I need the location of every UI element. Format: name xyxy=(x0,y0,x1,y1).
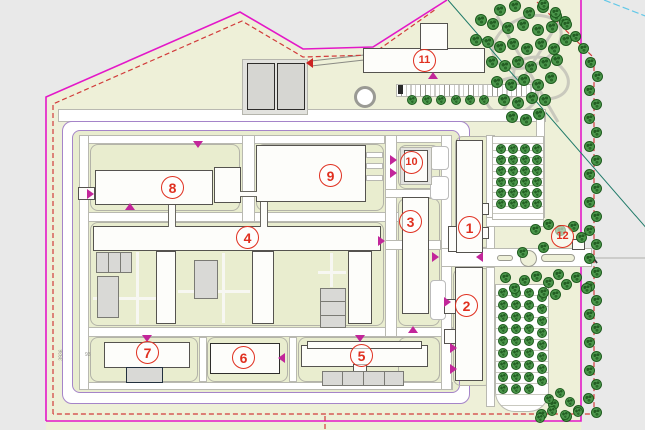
building-1-bump xyxy=(482,203,489,215)
pad xyxy=(430,146,449,170)
building-9-annex xyxy=(214,167,241,203)
building-2-annex xyxy=(444,329,456,344)
building-10 xyxy=(404,150,428,182)
yard-path xyxy=(136,252,139,324)
gatehouse-12 xyxy=(572,239,585,250)
twin-building-east xyxy=(277,63,305,110)
building-3 xyxy=(402,197,429,314)
twin-building-west xyxy=(247,63,275,110)
road-v4 xyxy=(199,337,207,382)
yard-path xyxy=(222,253,225,323)
entrance-median-2 xyxy=(541,254,575,262)
building-2 xyxy=(455,267,483,381)
service-box xyxy=(97,276,119,318)
parking-strip-11 xyxy=(396,84,536,97)
building-4-bar xyxy=(93,226,381,251)
yard-path xyxy=(330,253,333,287)
service-box xyxy=(96,252,132,273)
building-9-finger xyxy=(366,163,383,169)
building-9-finger xyxy=(366,175,383,181)
pad xyxy=(430,176,449,200)
building-6 xyxy=(210,343,280,374)
road-v6b xyxy=(486,267,495,407)
building-1-bump xyxy=(482,227,489,239)
building-4-wing-3 xyxy=(348,251,372,324)
road-v1 xyxy=(242,135,255,222)
building-11 xyxy=(363,48,485,73)
site-plan-drawing: 123456789101112 393693 xyxy=(0,0,645,430)
building-8 xyxy=(95,170,213,205)
service-box xyxy=(194,260,218,299)
corridor-8-4 xyxy=(168,205,176,227)
road-h1 xyxy=(79,212,399,222)
entrance-median-1 xyxy=(497,255,513,261)
corridor-annex-9 xyxy=(240,191,257,197)
yard-path xyxy=(318,271,346,274)
survey-cyan-line xyxy=(604,0,645,17)
building-1-annex xyxy=(448,226,457,252)
building-7-annex xyxy=(126,367,163,383)
road-west xyxy=(79,135,89,390)
road-v2 xyxy=(385,135,397,337)
service-box xyxy=(320,288,346,328)
building-11-tower xyxy=(420,23,448,50)
building-5-garages xyxy=(322,371,404,386)
building-7 xyxy=(104,342,190,368)
building-8-stub xyxy=(78,187,95,200)
building-1 xyxy=(456,140,483,253)
road-v5 xyxy=(289,337,297,382)
building-4-wing-2 xyxy=(252,251,274,324)
corridor-9-4 xyxy=(260,202,268,227)
roundabout-island xyxy=(520,250,537,267)
road-top xyxy=(79,135,385,144)
building-9-finger xyxy=(366,152,383,158)
parking-bottom xyxy=(495,284,549,412)
parking-mid xyxy=(492,136,544,220)
building-2-annex xyxy=(444,299,456,314)
building-9 xyxy=(256,145,366,202)
circular-plaza xyxy=(354,86,376,108)
building-4-wing-1 xyxy=(156,251,176,324)
building-5-top xyxy=(307,341,422,349)
car-icon xyxy=(398,85,403,94)
